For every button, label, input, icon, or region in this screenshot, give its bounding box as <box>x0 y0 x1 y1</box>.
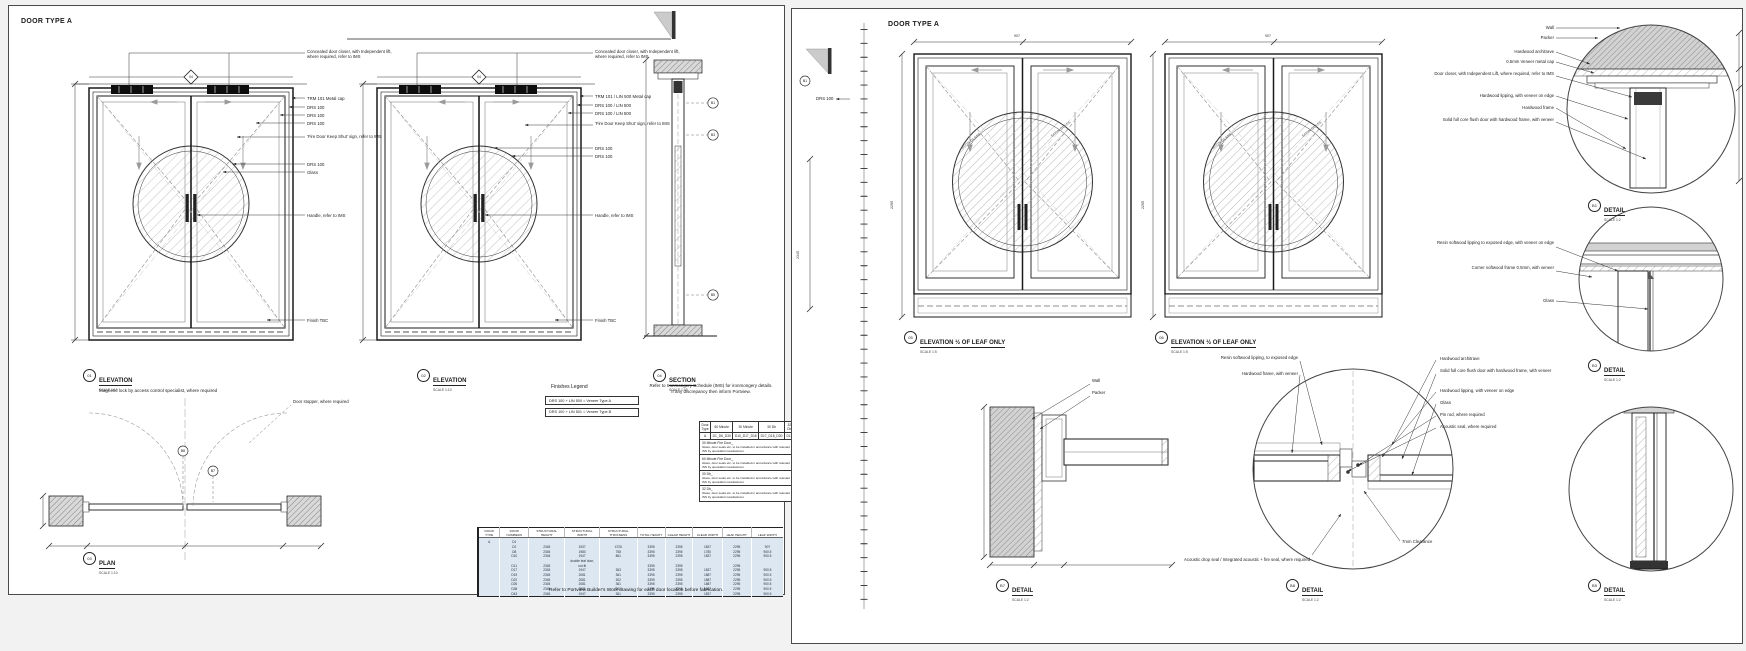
drawing-title-leaf-elevation-1: 05 ELEVATION ½ OF LEAF ONLY SCALE 1:5 <box>904 331 1005 354</box>
annotation-packer: Packer <box>1426 35 1554 40</box>
title-text: DETAIL <box>1604 208 1625 216</box>
section-marker: 04 <box>185 75 197 79</box>
annotation-door-closer: Concealed door closer, with Independent … <box>307 49 393 59</box>
title-text: DETAIL <box>1302 588 1323 596</box>
annotation-glass: Glass <box>307 170 393 175</box>
fire-note: 32 Db_ Glass, door seals etc. to be inst… <box>700 486 795 501</box>
title-text: DETAIL <box>1604 368 1625 376</box>
schedule-th: LEAF HEIGHT <box>722 528 751 538</box>
annotation-glass: Glass <box>1440 400 1552 405</box>
title-scale: SCALE 1:2 <box>1012 598 1033 602</box>
fire-cell: D10_D17_D18 <box>733 433 759 440</box>
annotation-door-closer: Concealed door closer, with Independent … <box>595 49 681 59</box>
title-scale: SCALE 1:5 <box>1171 350 1256 354</box>
annotation-drs: DRS 100 <box>307 162 393 167</box>
annotation-lipping: Hardwood lipping, with veneer on edge <box>1426 93 1554 98</box>
title-ref: 03 <box>83 552 96 565</box>
drawing-title-leaf-elevation-2: 06 ELEVATION ½ OF LEAF ONLY SCALE 1:5 <box>1155 331 1256 354</box>
schedule-th: CLEAR WIDTH <box>693 528 722 538</box>
schedule-th: DOOR TYPE <box>478 528 500 538</box>
annotation-architrave: Hardwood architrave <box>1440 356 1552 361</box>
annotation-frame: Corner softwood frame 0.5mm, with veneer <box>1426 265 1554 270</box>
schedule-cell: A <box>478 538 500 545</box>
annotation-architrave: Hardwood architrave <box>1426 49 1554 54</box>
schedule-th: DOOR NUMBERS <box>500 528 529 538</box>
title-scale: SCALE 1:10 <box>433 388 466 392</box>
schedule-cell: D1 <box>500 538 529 545</box>
annotation-door-stopper: Door stopper, where required <box>293 399 375 404</box>
title-scale: SCALE 1:2 <box>1302 598 1323 602</box>
schedule-cell <box>529 538 565 545</box>
title-text: DETAIL <box>1012 588 1033 596</box>
dim-width: 907 <box>1014 34 1020 38</box>
title-ref: 01 <box>83 369 96 382</box>
annotation-clearance: 7mm Clearance <box>1402 539 1462 544</box>
schedule-cell <box>637 538 665 545</box>
detail-ref: B1 <box>707 101 719 105</box>
finishes-legend-row: DRS 100 + LIN 501 = Veneer Type B <box>545 408 639 417</box>
annotation-wall: Wall <box>1092 378 1152 383</box>
annotation-packer: Packer <box>1092 390 1152 395</box>
detail-ref: B7 <box>207 469 219 473</box>
annotation-drs: DRS 100 <box>307 121 393 126</box>
sheet-left: DOOR TYPE A Concealed door closer, with … <box>8 5 785 595</box>
annotation-lipping: Resin softwood lipping, to exposed edge <box>1210 355 1298 360</box>
annotation-drs: DRS 100 / LIN 500 <box>595 103 681 108</box>
footer-note: Refer to Portview Builder's Work drawing… <box>549 588 781 593</box>
title-scale: SCALE 1:5 <box>920 350 1005 354</box>
page-title: DOOR TYPE A <box>21 18 72 25</box>
title-text: ELEVATION ½ OF LEAF ONLY <box>1171 340 1256 348</box>
fire-th: 60 Minute <box>711 422 733 433</box>
schedule-th: LEAF WIDTH <box>751 528 783 538</box>
title-ref: 02 <box>417 369 430 382</box>
schedule-th: STRUCTURAL THICKNESS <box>599 528 637 538</box>
section-marker: 04 <box>473 75 485 79</box>
title-ref: 04 <box>653 369 666 382</box>
ironmongery-note: Refer to Ironmongery Schedule (IMS) for … <box>639 383 783 395</box>
fire-cell: D17_D18_D30 <box>759 433 785 440</box>
annotation-drs: DRS 100 <box>307 105 393 110</box>
title-ref: B8 <box>1286 579 1299 592</box>
schedule-row: AD1 <box>478 538 783 545</box>
fire-cell: A <box>700 433 711 440</box>
fire-note: 60 Minute Fire Door_ Glass, door seals e… <box>700 455 795 470</box>
schedule-th: TOTAL HEIGHT <box>637 528 665 538</box>
annotation-fire-sign: 'Fire Door Keep Shut' sign, refer to IMS <box>595 121 681 126</box>
drawing-title-detail-b5: B5 DETAIL SCALE 1:2 <box>1588 579 1625 602</box>
annotation-glass: Glass <box>1426 298 1554 303</box>
dim-height: 2295 <box>1141 169 1145 209</box>
schedule-th: CLEAR HEIGHT <box>665 528 693 538</box>
annotation-fire-sign: 'Fire Door Keep Shut' sign, refer to IMS <box>307 134 393 139</box>
fire-note-body: Glass, door seals etc. to be installed i… <box>702 445 792 453</box>
detail-ref: B3 <box>707 133 719 137</box>
schedule-cell: D43 <box>500 591 529 596</box>
fire-th: Door Type <box>700 422 711 433</box>
finishes-legend-title: Finishes Legend <box>551 384 588 390</box>
finishes-legend-row: DRS 100 + LIN 500 = Veneer Type A <box>545 396 639 405</box>
fire-note-body: Glass, door seals etc. to be installed i… <box>702 476 792 484</box>
right-sheet-drawing <box>792 9 1742 643</box>
annotation-drop-seal: Acoustic drop seal / Integrated acoustic… <box>1180 557 1310 562</box>
fire-rating-table: Door Type 60 Minute 30 Minute 30 Db 32 D… <box>699 421 795 502</box>
annotation-drs: DRS 100 <box>595 146 681 151</box>
title-ref: 06 <box>1155 331 1168 344</box>
fire-th: 30 Db <box>759 422 785 433</box>
door-schedule-table: DOOR TYPE DOOR NUMBERS STRUCTURAL HEIGHT… <box>477 527 783 597</box>
fire-note: 30 Minute Fire Door_ Glass, door seals e… <box>700 440 795 455</box>
annotation-handle: Handle, refer to IMS <box>595 213 681 218</box>
detail-ref: B5 <box>707 293 719 297</box>
schedule-cell <box>599 538 637 545</box>
detail-ref: B1 <box>799 79 811 83</box>
annotation-lipping: Resin softwood lipping to exposed edge, … <box>1426 240 1554 245</box>
drawing-title-detail-b1: B1 DETAIL SCALE 1:2 <box>1588 199 1625 222</box>
schedule-cell <box>478 591 500 596</box>
title-text: PLAN <box>99 561 115 569</box>
page-title: DOOR TYPE A <box>888 21 939 28</box>
fire-note: 30 Db_ Glass, door seals etc. to be inst… <box>700 470 795 485</box>
dim-width: 907 <box>1265 34 1271 38</box>
annotation-door-leaf: Solid full core flush door with hardwood… <box>1426 117 1554 122</box>
annotation-drs: DRS 100 <box>307 113 393 118</box>
schedule-cell <box>751 538 783 545</box>
drawing-title-detail-b7: B7 DETAIL SCALE 1:2 <box>996 579 1033 602</box>
annotation-finish: Finish TBC <box>595 318 681 323</box>
title-ref: B1 <box>1588 199 1601 212</box>
schedule-cell <box>665 538 693 545</box>
annotation-frame: Hardwood frame, with veneer <box>1210 371 1298 376</box>
title-ref: 05 <box>904 331 917 344</box>
title-scale: SCALE 1:2 <box>1604 598 1625 602</box>
annotation-pin-rod: Pin rod, where required <box>1440 412 1552 417</box>
annotation-metal-cap: 0.5mm Veneer metal cap <box>1426 59 1554 64</box>
title-ref: B5 <box>1588 579 1601 592</box>
dim-label: 2345 <box>796 209 800 259</box>
annotation-metal-cap: TRM 101 / LIN 500 Metal cap <box>595 94 681 99</box>
annotation-lipping: Hardwood lipping, with veneer on edge <box>1440 388 1552 393</box>
title-ref: B3 <box>1588 359 1601 372</box>
title-scale: SCALE 1:2 <box>1604 218 1625 222</box>
annotation-door-closer: Door closer, with Independent Lift, wher… <box>1426 71 1554 76</box>
schedule-cell <box>693 538 722 545</box>
schedule-th: STRUCTURAL WIDTH <box>565 528 600 538</box>
title-text: DETAIL <box>1604 588 1625 596</box>
schedule-cell <box>722 538 751 545</box>
annotation-finish: Finish TBC <box>307 318 393 323</box>
drawing-title-detail-b3: B3 DETAIL SCALE 1:2 <box>1588 359 1625 382</box>
detail-ref: B8 <box>177 449 189 453</box>
fire-note-body: Glass, door seals etc. to be installed i… <box>702 491 792 499</box>
annotation-acoustic-seal: Acoustic seal, where required <box>1440 424 1552 429</box>
title-scale: SCALE 1:2 <box>1604 378 1625 382</box>
annotation-frame: Hardwood frame <box>1426 105 1554 110</box>
annotation-handle: Handle, refer to IMS <box>307 213 393 218</box>
annotation-drs: DRS 100 / LIN 500 <box>595 111 681 116</box>
fire-th: 30 Minute <box>733 422 759 433</box>
annotation-drs: DRS 100 <box>816 96 856 101</box>
schedule-cell <box>565 538 600 545</box>
title-text: ELEVATION <box>433 378 466 386</box>
annotation-drs: DRS 100 <box>595 154 681 159</box>
schedule-th: STRUCTURAL HEIGHT <box>529 528 565 538</box>
drawing-title-elevation-2: 02 ELEVATION SCALE 1:10 <box>417 369 466 392</box>
drawing-title-detail-b8: B8 DETAIL SCALE 1:2 <box>1286 579 1323 602</box>
title-scale: SCALE 1:10 <box>99 571 118 575</box>
elevation-note: Magnetic lock by access control speciali… <box>99 388 319 393</box>
ironmongery-note-line2: If any discrepancy then inform Portview. <box>671 389 751 394</box>
sheet-right: DOOR TYPE A B1 DRS 100 2345 907 2295 SAT… <box>791 8 1743 644</box>
ironmongery-note-line1: Refer to Ironmongery Schedule (IMS) for … <box>649 383 772 388</box>
drawing-title-plan: 03 PLAN SCALE 1:10 <box>83 552 118 575</box>
title-text: ELEVATION <box>99 378 132 386</box>
dim-height: 2295 <box>890 169 894 209</box>
annotation-door-leaf: Solid full core flush door with hardwood… <box>1440 368 1552 373</box>
title-ref: B7 <box>996 579 1009 592</box>
title-text: ELEVATION ½ OF LEAF ONLY <box>920 340 1005 348</box>
fire-note-body: Glass, door seals etc. to be installed i… <box>702 461 792 469</box>
fire-cell: D1_D6_D30 <box>711 433 733 440</box>
annotation-wall: Wall <box>1426 25 1554 30</box>
annotation-metal-cap: TRM 101 Metal cap <box>307 96 393 101</box>
